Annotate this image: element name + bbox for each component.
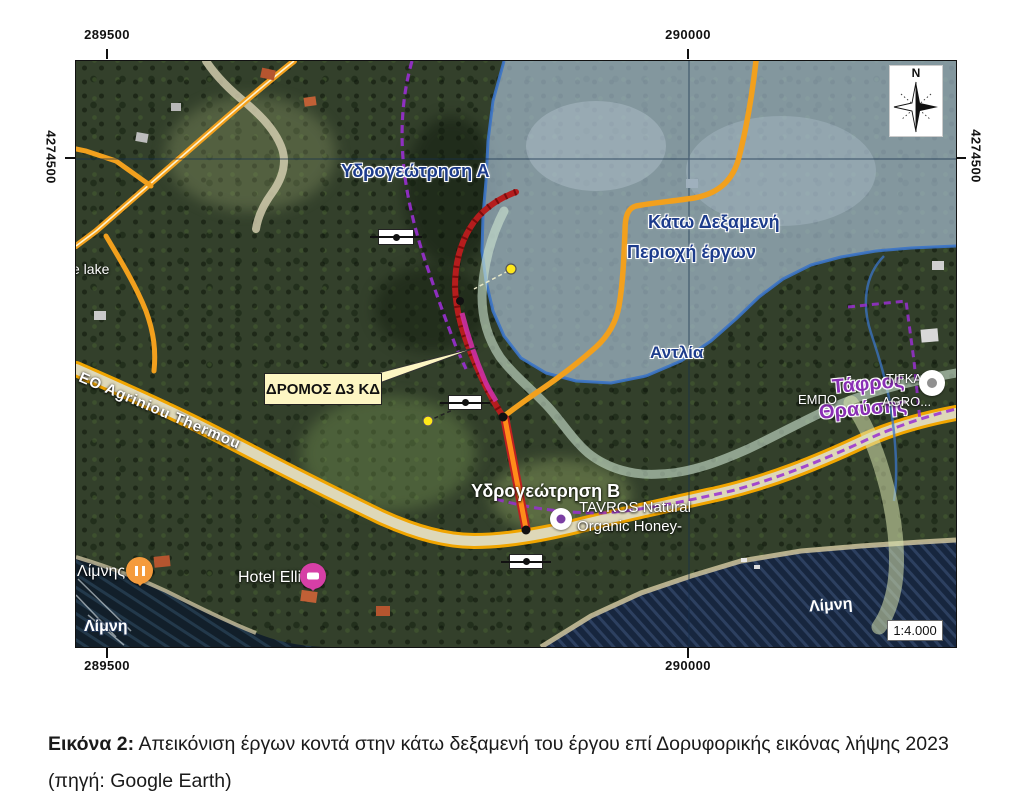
gate-dot (462, 399, 469, 406)
tick-right (956, 157, 966, 159)
gate-marker (378, 229, 414, 245)
caption-label: Εικόνα 2: (48, 733, 134, 755)
satellite-map: Υδρογεώτρηση Α Κάτω Δεξαμενή Περιοχή έργ… (75, 60, 957, 648)
bed-icon (307, 573, 319, 580)
callout-leader (374, 347, 478, 385)
pink-segment (462, 313, 496, 401)
project-area-light-patch (686, 116, 876, 226)
label-pump: Αντλία (650, 343, 703, 363)
drill-line-b-inner (505, 419, 526, 529)
poi-core (927, 378, 937, 388)
tick-top-left (106, 49, 108, 59)
grid-label-bottom-right: 290000 (665, 658, 711, 673)
label-tavros-1: TAVROS Natural (579, 499, 691, 516)
purple-boundary-west (402, 61, 466, 369)
tick-bottom-right (687, 648, 689, 658)
project-area-light-patch (526, 101, 666, 191)
label-limnis: Λίμνης (77, 563, 125, 581)
secondary-road-spur (76, 149, 151, 186)
grid-label-bottom-left: 289500 (84, 658, 130, 673)
label-works-area: Περιοχή έργων (627, 242, 756, 263)
tick-left (65, 157, 75, 159)
caption-text: Απεικόνιση έργων κοντά στην κάτω δεξαμεν… (48, 733, 949, 792)
gate-dot (393, 234, 400, 241)
gate-dot (523, 558, 530, 565)
restaurant-pin-icon (126, 557, 153, 584)
label-lower-reservoir: Κάτω Δεξαμενή (648, 212, 780, 233)
gate-marker (448, 395, 482, 410)
dirt-road (206, 61, 284, 229)
tick-bottom-left (106, 648, 108, 658)
boat (754, 565, 760, 569)
tigkas-poi-icon (919, 370, 945, 396)
secondary-road-link (106, 236, 155, 371)
grid-label-top-left: 289500 (84, 27, 130, 42)
label-borehole-a: Υδρογεώτρηση Α (341, 161, 489, 182)
figure-caption: Εικόνα 2: Απεικόνιση έργων κοντά στην κά… (48, 726, 998, 800)
survey-dot-yellow (506, 264, 516, 274)
label-hotel-elli: Hotel Elli (238, 569, 301, 587)
hotel-pin-icon (300, 563, 326, 589)
poi-core (557, 515, 566, 524)
grid-label-right: 4274500 (969, 129, 984, 182)
tick-top-right (687, 49, 689, 59)
node-dot (456, 297, 464, 305)
label-lake-sw: Λίμνη (84, 618, 128, 636)
compass-rose-icon (891, 80, 941, 134)
node-dot (522, 526, 531, 535)
label-the-lake: e lake (75, 261, 109, 277)
fork-knife-icon (134, 566, 146, 576)
gate-marker (509, 554, 543, 569)
label-agro: AGRO... (882, 394, 931, 409)
node-dot (499, 413, 508, 422)
north-compass: N (889, 65, 943, 137)
label-tavros-2: Organic Honey- (577, 518, 682, 535)
grid-label-left: 4274500 (44, 130, 59, 183)
road-callout-box: ΔΡΟΜΟΣ Δ3 ΚΔ (264, 373, 382, 405)
tavros-poi-icon (550, 508, 572, 530)
survey-dot-yellow (423, 416, 433, 426)
grid-label-top-right: 290000 (665, 27, 711, 42)
label-lake-se: Λίμνη (808, 596, 853, 617)
north-label: N (890, 66, 942, 80)
scale-box: 1:4.000 (887, 620, 943, 641)
boat (741, 558, 747, 562)
label-emporia: ΕΜΠΟ (798, 392, 837, 407)
